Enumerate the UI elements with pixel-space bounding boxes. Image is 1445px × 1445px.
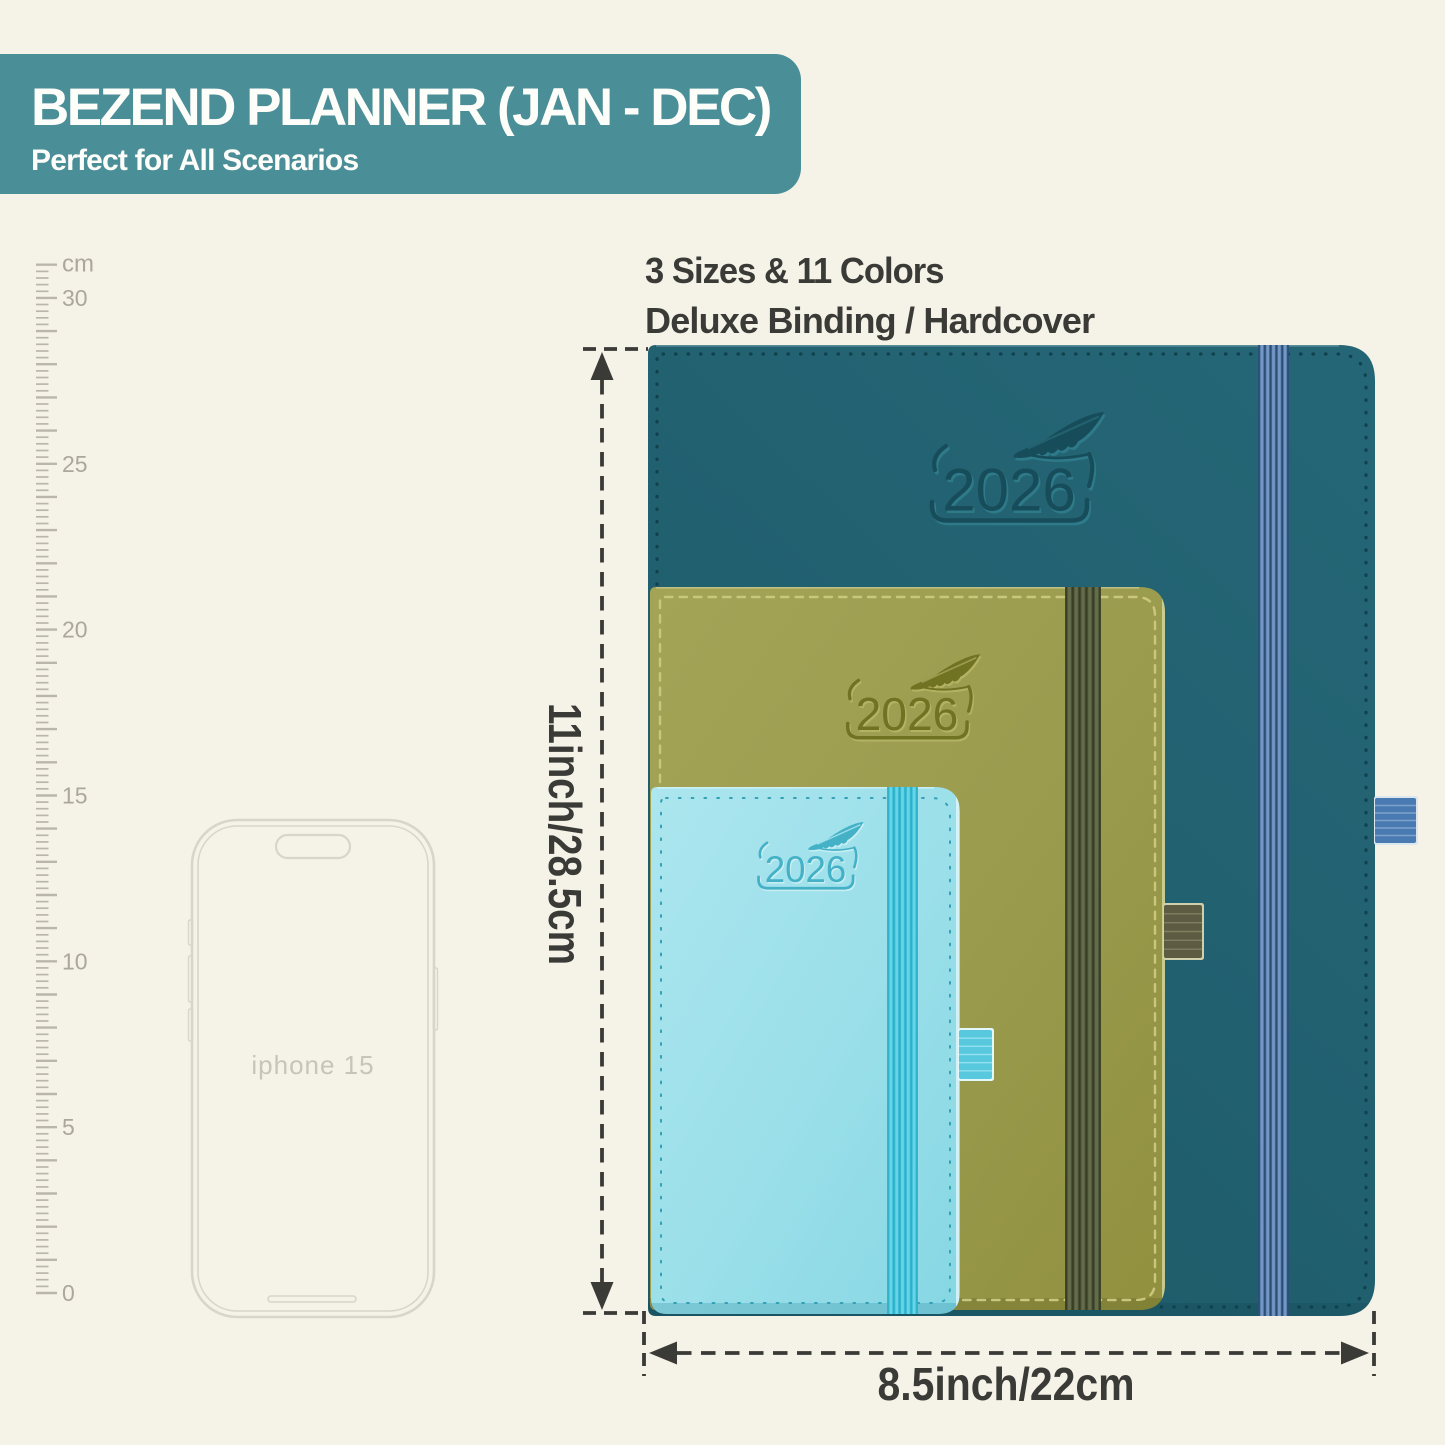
svg-text:Perfect for All Scenarios: Perfect for All Scenarios (31, 144, 358, 177)
svg-text:11inch/28.5cm: 11inch/28.5cm (539, 703, 590, 965)
svg-text:3 Sizes & 11 Colors: 3 Sizes & 11 Colors (645, 251, 944, 291)
svg-text:0: 0 (62, 1280, 75, 1306)
svg-text:20: 20 (62, 617, 88, 643)
svg-text:iphone 15: iphone 15 (251, 1050, 374, 1080)
svg-text:30: 30 (62, 285, 88, 311)
svg-text:8.5inch/22cm: 8.5inch/22cm (877, 1360, 1134, 1411)
svg-text:25: 25 (62, 451, 88, 477)
svg-text:15: 15 (62, 783, 88, 809)
svg-text:cm: cm (62, 251, 94, 278)
svg-text:BEZEND PLANNER (JAN - DEC): BEZEND PLANNER (JAN - DEC) (31, 78, 771, 137)
svg-text:Deluxe Binding / Hardcover: Deluxe Binding / Hardcover (645, 300, 1095, 341)
svg-text:5: 5 (62, 1114, 75, 1140)
svg-text:10: 10 (62, 948, 88, 974)
